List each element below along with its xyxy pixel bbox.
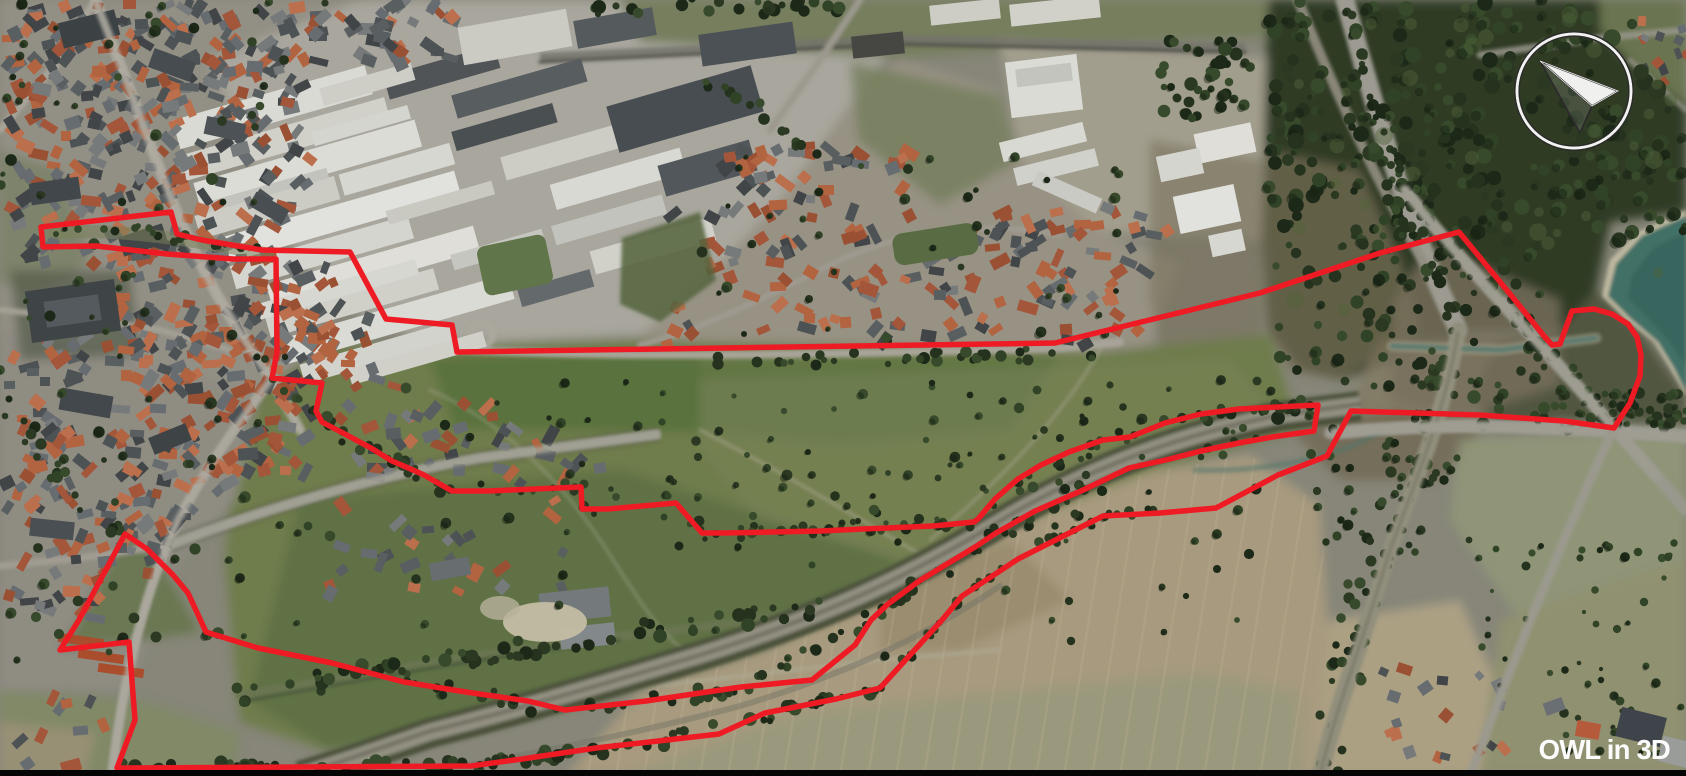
svg-text:OWL in 3D: OWL in 3D [1539, 734, 1670, 765]
